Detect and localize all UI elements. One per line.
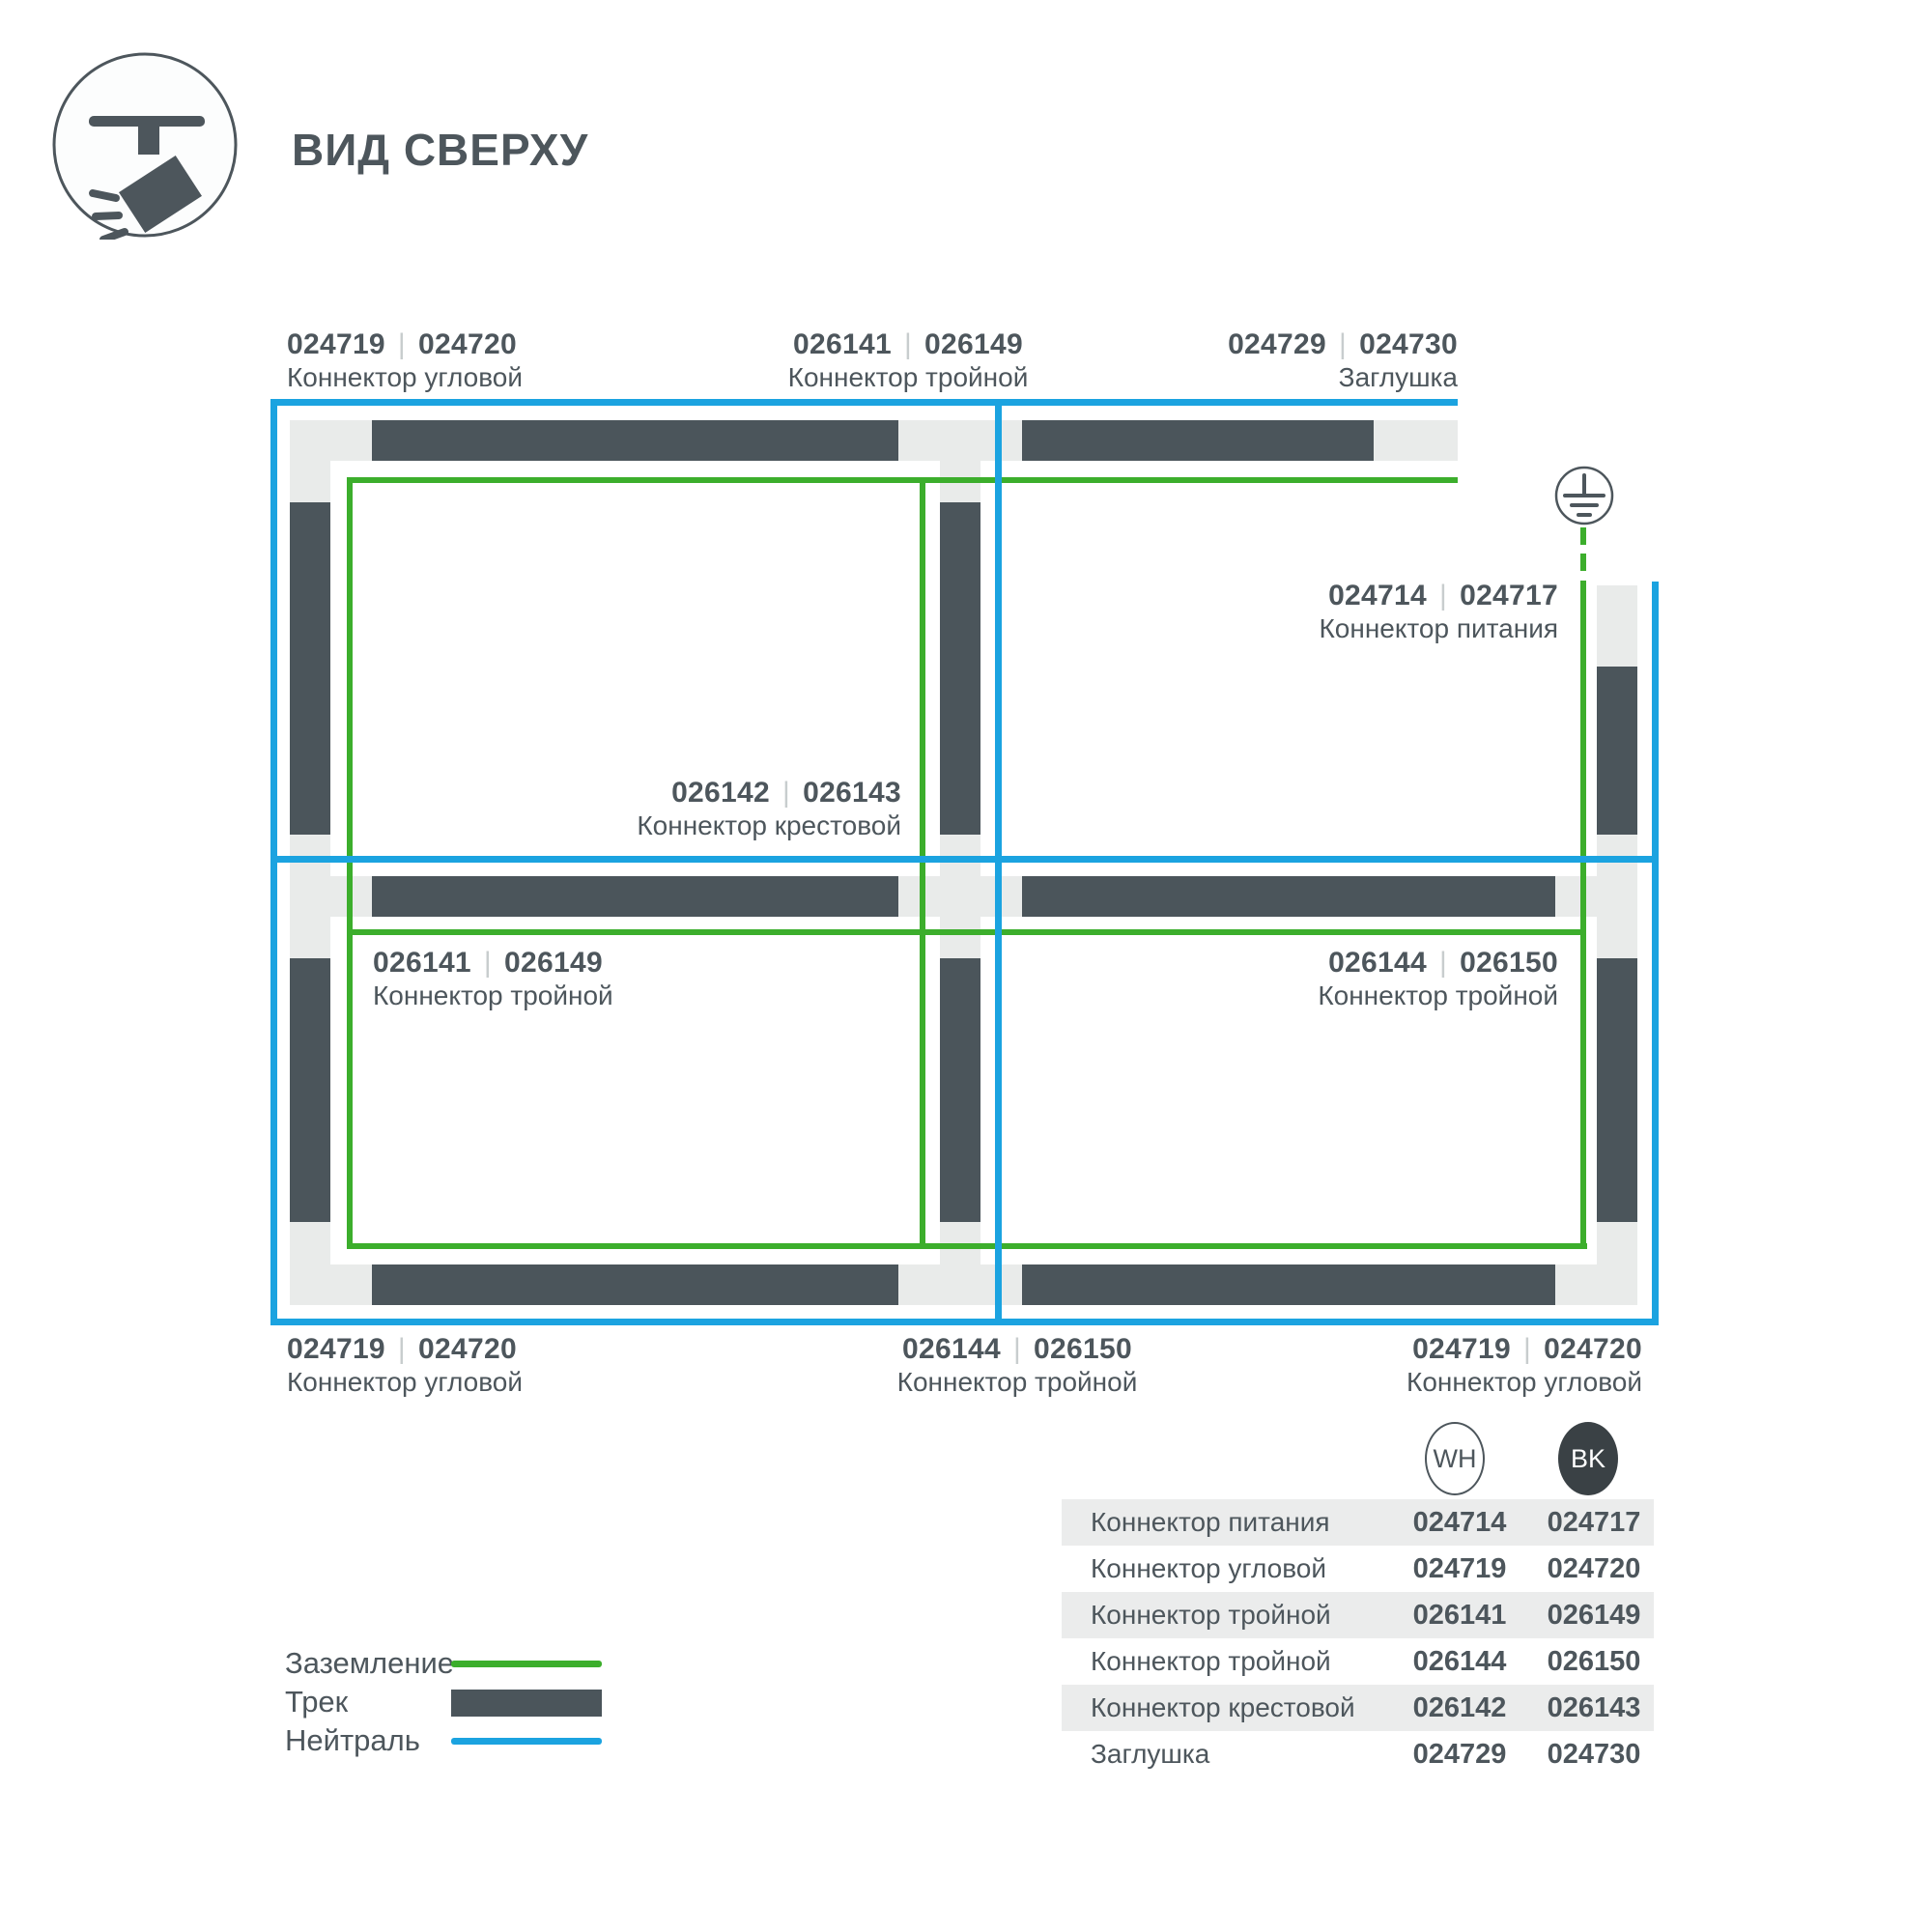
connector-label-cross: 026142|026143 Коннектор крестовой xyxy=(637,777,901,840)
connector-label-top-left: 024719|024720 Коннектор угловой xyxy=(287,328,523,392)
divider: | xyxy=(892,328,924,360)
neutral-line-left xyxy=(270,399,277,1325)
ground-line-dashed xyxy=(1580,527,1586,580)
ground-symbol-icon xyxy=(1553,465,1615,526)
divider: | xyxy=(770,777,803,809)
ground-line-center xyxy=(920,477,925,1249)
table-row: Коннектор тройной 026141 026149 xyxy=(1062,1592,1654,1638)
divider: | xyxy=(1001,1333,1034,1365)
neutral-line-swatch xyxy=(451,1738,602,1745)
track-segment xyxy=(1022,420,1374,461)
track-segment xyxy=(1597,667,1637,835)
connector-label-bottom-center: 026144|026150 Коннектор тройной xyxy=(897,1333,1138,1397)
neutral-line-right xyxy=(1652,582,1659,1325)
ground-line-top xyxy=(347,477,1458,483)
ground-line-swatch xyxy=(451,1661,602,1667)
table-row: Коннектор тройной 026144 026150 xyxy=(1062,1638,1654,1685)
ground-line-left xyxy=(347,477,353,1249)
track-segment xyxy=(372,420,898,461)
neutral-line-top xyxy=(270,399,1458,406)
page-title: ВИД СВЕРХУ xyxy=(292,124,588,176)
legend-item-track: Трек xyxy=(285,1685,604,1719)
connector-label-bottom-right: 024719|024720 Коннектор угловой xyxy=(1406,1333,1642,1397)
article-table: Коннектор питания 024714 024717 Коннекто… xyxy=(1062,1499,1654,1777)
connector-label-top-right: 024729|024730 Заглушка xyxy=(1228,328,1458,392)
ground-line-bottom xyxy=(347,1243,1587,1249)
connector-label-top-center: 026141|026149 Коннектор тройной xyxy=(788,328,1029,392)
track-segment xyxy=(1022,1264,1555,1305)
divider: | xyxy=(471,947,504,979)
track-segment xyxy=(1597,958,1637,1222)
divider: | xyxy=(385,328,418,360)
divider: | xyxy=(385,1333,418,1365)
ground-line-mid xyxy=(347,929,1586,935)
page: ВИД СВЕРХУ xyxy=(0,0,1932,1932)
connector-label-power: 024714|024717 Коннектор питания xyxy=(1319,580,1558,643)
divider: | xyxy=(1326,328,1359,360)
divider: | xyxy=(1427,947,1460,979)
ground-line-right xyxy=(1580,581,1586,1249)
table-row: Коннектор питания 024714 024717 xyxy=(1062,1499,1654,1546)
legend-item-neutral: Нейтраль xyxy=(285,1723,604,1758)
track-light-icon xyxy=(50,50,240,240)
table-row: Коннектор угловой 024719 024720 xyxy=(1062,1546,1654,1592)
neutral-line-bottom xyxy=(270,1319,1659,1325)
table-row: Заглушка 024729 024730 xyxy=(1062,1731,1654,1777)
track-segment xyxy=(940,502,980,835)
legend-item-ground: Заземление xyxy=(285,1646,604,1681)
track-segment xyxy=(290,958,330,1222)
track-segment xyxy=(290,502,330,835)
track-bar-swatch xyxy=(451,1690,602,1717)
connector-label-lower-right: 026144|026150 Коннектор тройной xyxy=(1318,947,1558,1010)
neutral-line-center xyxy=(995,399,1002,1325)
divider: | xyxy=(1511,1333,1544,1365)
color-badge-white: WH xyxy=(1425,1422,1485,1495)
table-row: Коннектор крестовой 026142 026143 xyxy=(1062,1685,1654,1731)
track-segment xyxy=(940,958,980,1222)
color-badge-black: BK xyxy=(1558,1422,1618,1495)
divider: | xyxy=(1427,580,1460,611)
neutral-line-mid xyxy=(270,856,1659,863)
track-segment xyxy=(1022,876,1555,917)
connector-label-lower-left: 026141|026149 Коннектор тройной xyxy=(373,947,613,1010)
track-segment xyxy=(372,876,898,917)
track-segment xyxy=(372,1264,898,1305)
connector-label-bottom-left: 024719|024720 Коннектор угловой xyxy=(287,1333,523,1397)
